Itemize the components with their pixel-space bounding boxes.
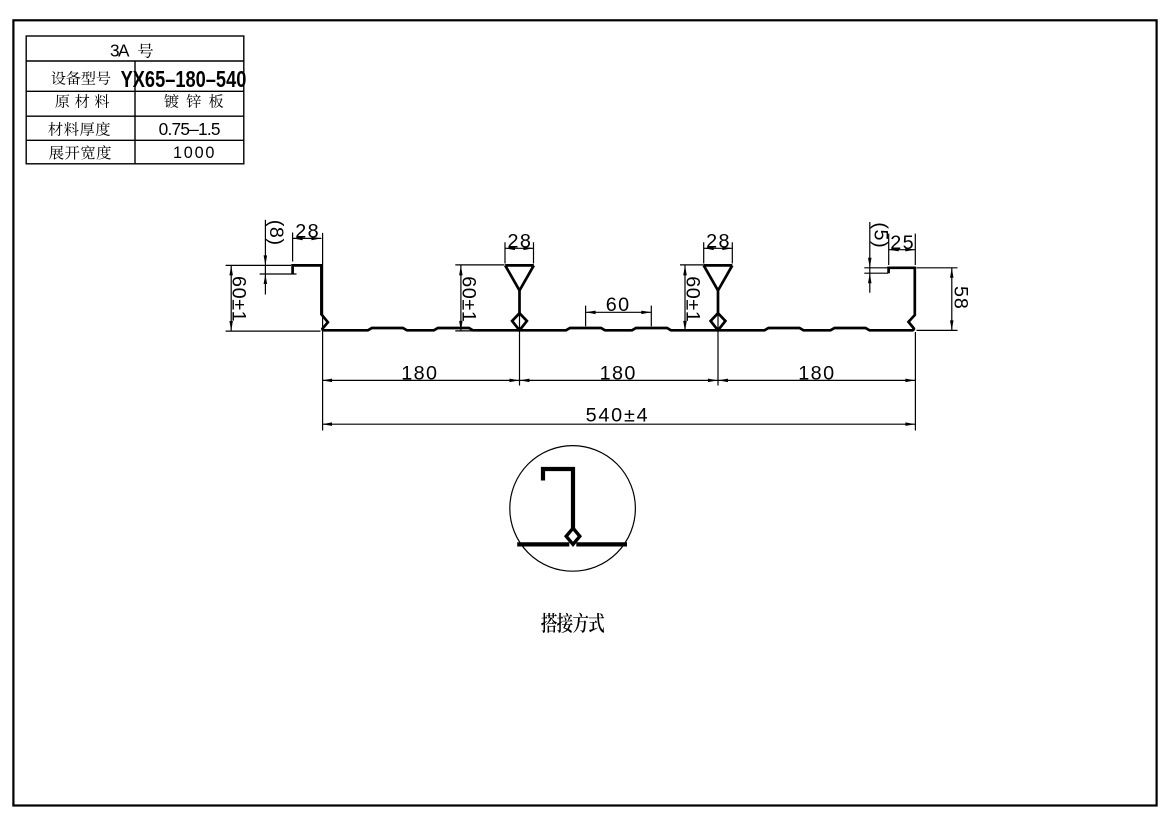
svg-text:60: 60 [606,294,631,316]
svg-text:3A: 3A [110,41,130,61]
svg-text:540±4: 540±4 [586,405,650,427]
svg-text:28: 28 [295,221,320,243]
svg-text:0.75–1.5: 0.75–1.5 [159,119,221,139]
svg-text:(8): (8) [265,220,287,246]
svg-text:25: 25 [890,232,915,254]
svg-text:180: 180 [401,363,438,385]
svg-text:180: 180 [798,363,835,385]
svg-text:(5): (5) [870,222,892,248]
svg-text:28: 28 [507,231,532,253]
svg-text:180: 180 [600,363,637,385]
svg-text:60±1: 60±1 [457,276,479,322]
svg-text:60±1: 60±1 [228,276,250,322]
svg-text:YX65–180–540: YX65–180–540 [121,67,247,93]
svg-text:28: 28 [706,231,731,253]
svg-text:60±1: 60±1 [682,276,704,322]
svg-text:58: 58 [949,286,971,310]
svg-text:1000: 1000 [173,144,216,162]
